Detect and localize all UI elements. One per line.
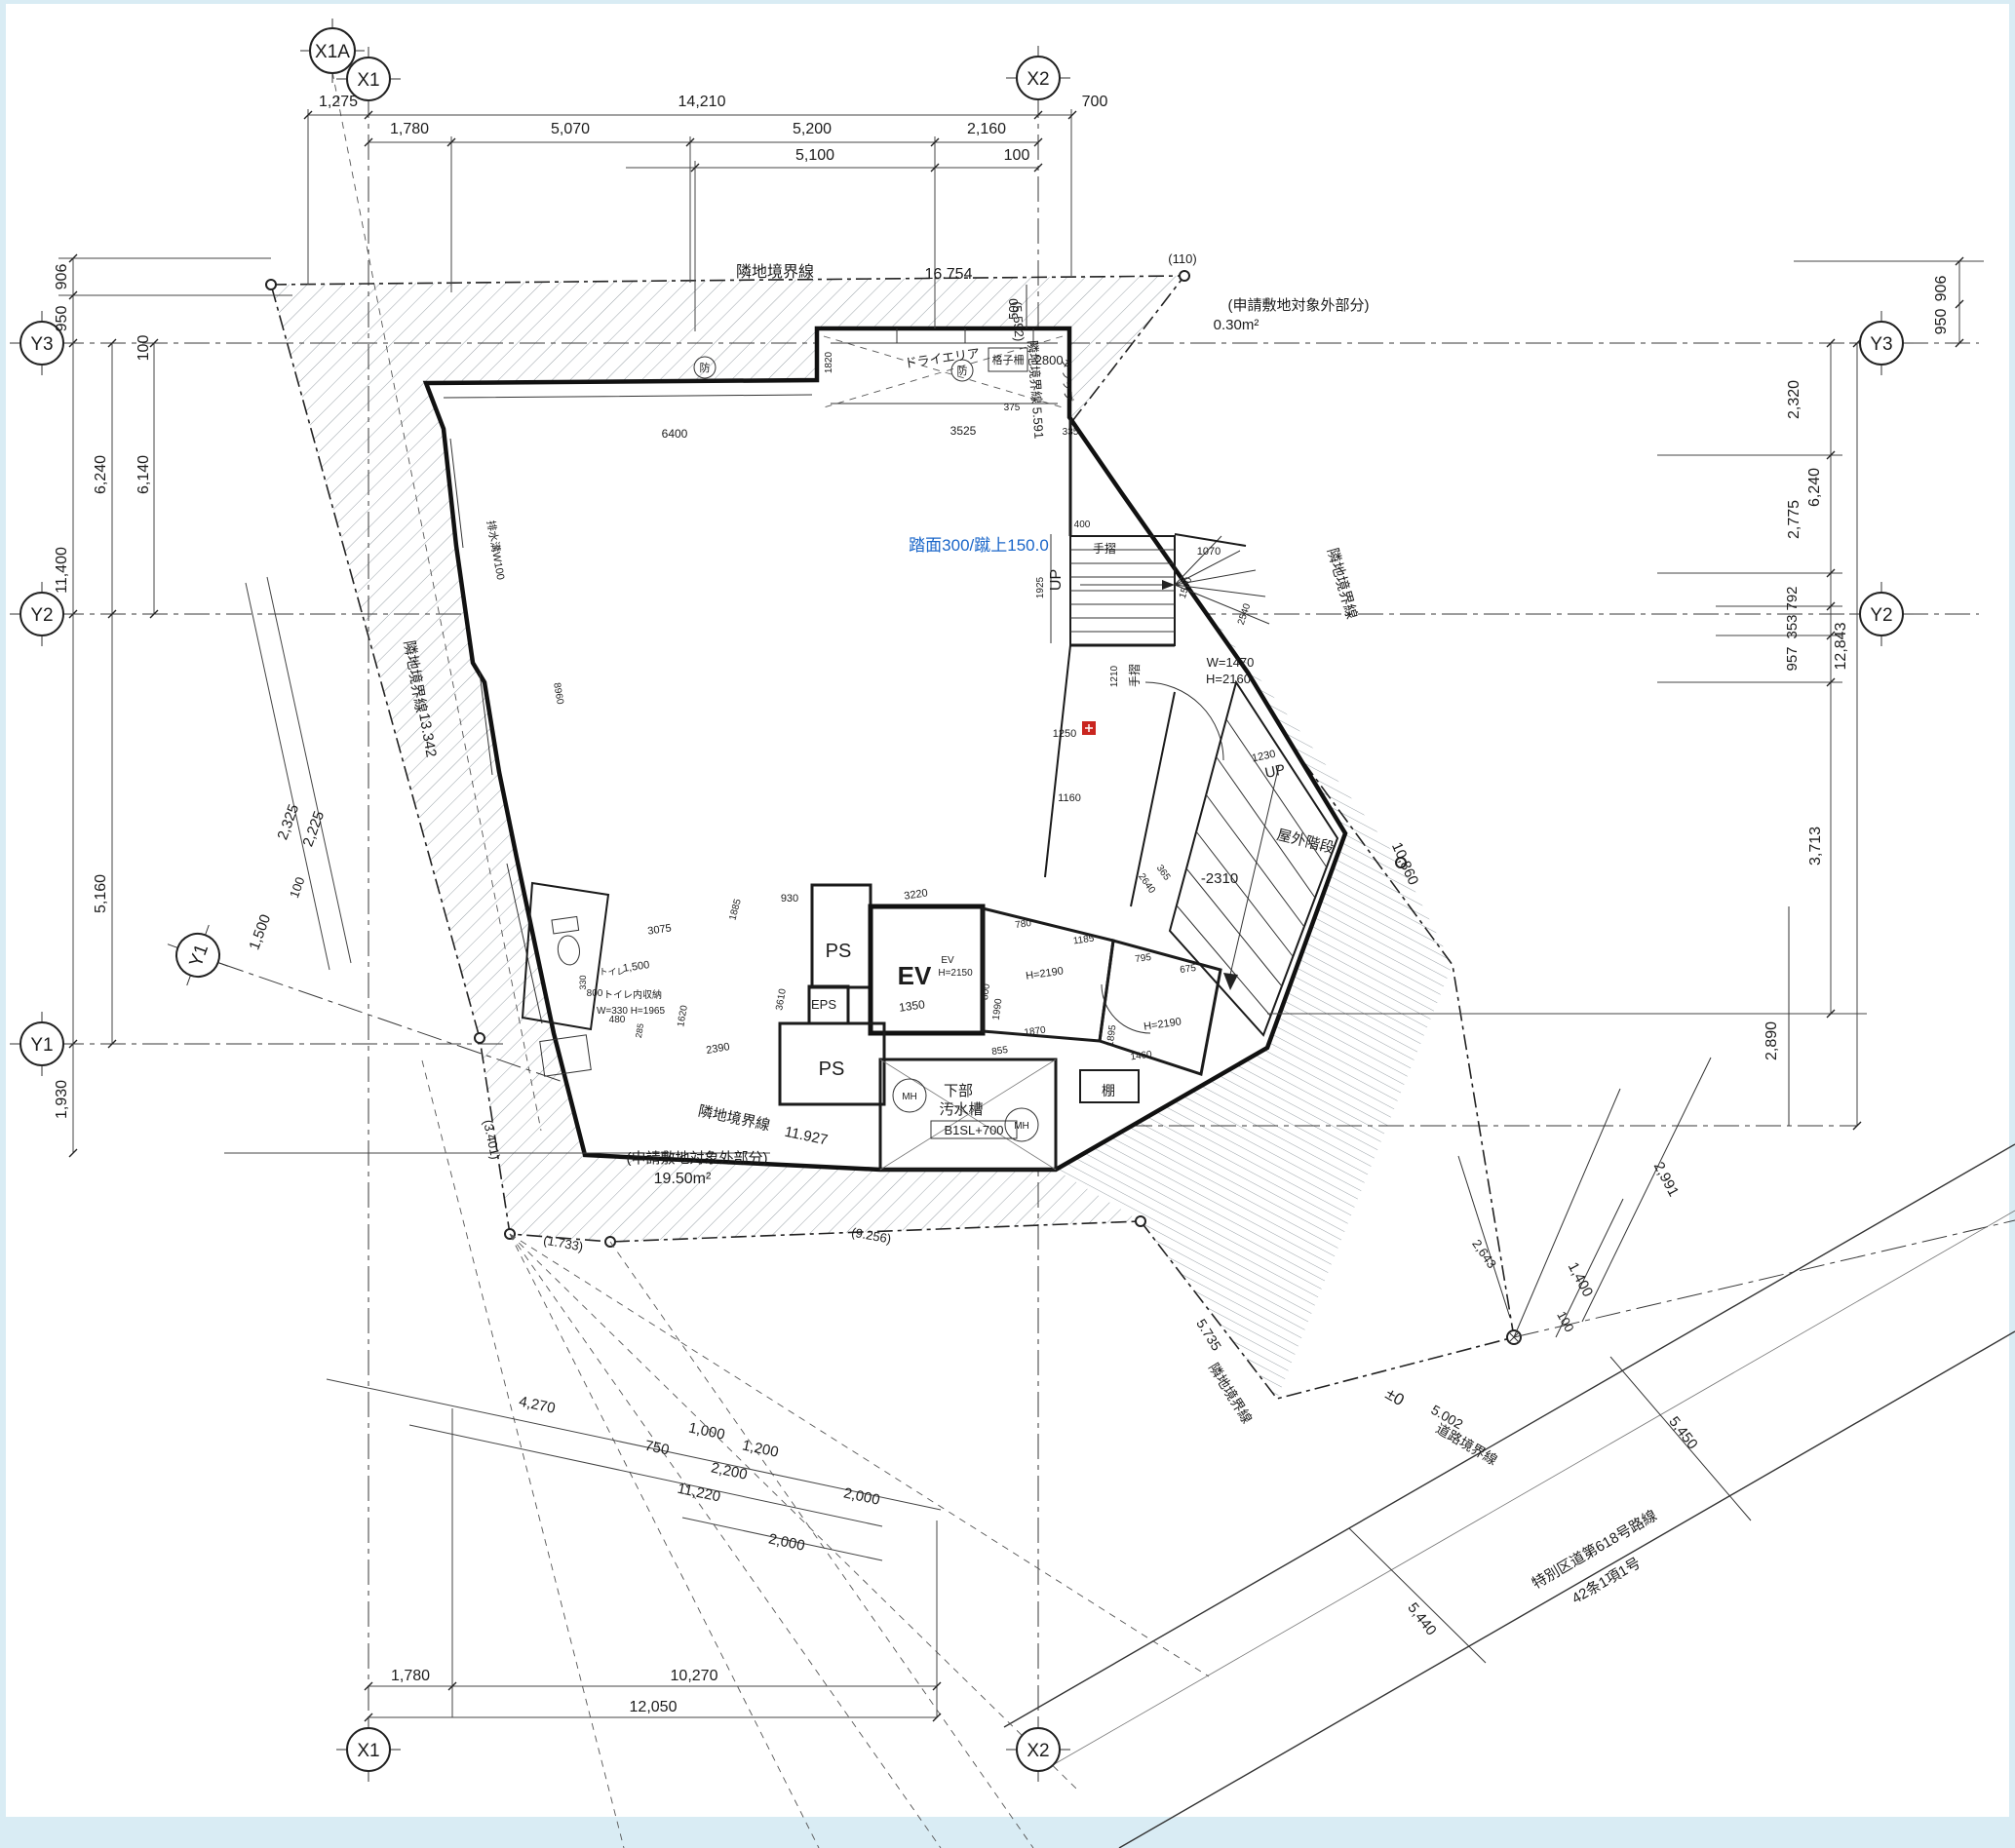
dim-label: 5,200	[793, 121, 832, 137]
boundary-length: (110)	[1168, 251, 1196, 266]
dim-label: 1925	[1035, 576, 1046, 598]
svg-text:Y2: Y2	[30, 605, 53, 626]
room-label-tank: 汚水槽	[939, 1101, 983, 1118]
dim-label: 1210	[1109, 665, 1120, 687]
dim-label: 1160	[1058, 792, 1081, 804]
stair-spec-note: 踏面300/蹴上150.0	[909, 536, 1049, 555]
dim-label: 11,400	[54, 547, 70, 594]
room-label-ps: PS	[819, 1059, 845, 1080]
dim-label: 12,843	[1833, 622, 1849, 670]
dim-label: 5,100	[795, 147, 834, 164]
door-spec: H=2160	[1206, 672, 1251, 686]
room-label: 格子柵	[992, 353, 1025, 366]
dim-label: 792	[1784, 586, 1801, 610]
dim-label: 400	[1074, 520, 1091, 530]
dim-label: 2,775	[1786, 500, 1802, 539]
dim-label: 3525	[950, 424, 977, 438]
dim-label: 950	[1933, 309, 1950, 335]
dim-label: 480	[609, 1015, 626, 1025]
svg-text:X2: X2	[1027, 1741, 1049, 1761]
fire-label: 防	[957, 364, 968, 377]
dim-label: 2,160	[967, 121, 1006, 137]
dim-label: 1,275	[319, 94, 358, 110]
dim-label: 906	[54, 264, 70, 290]
svg-text:Y2: Y2	[1870, 605, 1892, 626]
fire-label: 防	[700, 361, 711, 374]
dim-label: 10,270	[671, 1668, 718, 1684]
boundary-corner-marker	[266, 280, 276, 289]
dim-label: 14,210	[678, 94, 726, 110]
dim-label: 950	[54, 306, 70, 332]
dim-label: 335	[1063, 427, 1079, 438]
dim-label: 2,890	[1763, 1021, 1780, 1060]
svg-text:Y3: Y3	[30, 334, 53, 355]
up-label: UP	[1048, 569, 1065, 591]
dim-label: 6,140	[136, 455, 152, 494]
plan-drawing: X1A X1 X2 X1 X2 Y3 Y2 Y1 Y3 Y2 Y1 1,275 …	[0, 0, 2015, 1848]
handrail-label: 手摺	[1127, 664, 1142, 687]
area-note: (申請敷地対象外部分)	[627, 1149, 768, 1167]
svg-text:Y1: Y1	[30, 1035, 53, 1056]
room-label-ps: PS	[826, 941, 852, 962]
boundary-label: 隣地境界線	[736, 262, 814, 281]
room-note: W=330 H=1965	[597, 1006, 665, 1017]
dim-label: 906	[1933, 276, 1950, 302]
manhole-label: MH	[1014, 1121, 1029, 1132]
dim-label: 100	[136, 335, 152, 362]
svg-text:Y3: Y3	[1870, 334, 1892, 355]
floor-plan-sheet: X1A X1 X2 X1 X2 Y3 Y2 Y1 Y3 Y2 Y1 1,275 …	[0, 0, 2015, 1848]
dim-label: 12,050	[630, 1699, 678, 1715]
room-note: H=2150	[938, 968, 973, 979]
area-note: (申請敷地対象外部分)	[1228, 296, 1370, 314]
level-label: -2800	[1030, 353, 1063, 367]
room-label: トイレ	[599, 967, 625, 977]
dim-label: 5,070	[551, 121, 590, 137]
room-label-tank: 下部	[944, 1083, 973, 1099]
dim-label: 375	[1004, 403, 1021, 413]
dim-label: 1070	[1197, 546, 1221, 558]
dim-label: 800	[587, 988, 603, 999]
room-note: トイレ内収納	[603, 988, 662, 1001]
dim-label: 100	[1004, 147, 1030, 164]
svg-text:X1: X1	[357, 1741, 379, 1761]
dim-label: 957	[1784, 646, 1801, 671]
level-label: B1SL+700	[944, 1123, 1003, 1137]
dim-label: 2,320	[1786, 380, 1802, 419]
dim-label: 500	[1006, 298, 1021, 320]
dim-label: 700	[1082, 94, 1108, 110]
dim-label: 1,780	[391, 1668, 430, 1684]
dim-label: 1820	[824, 351, 834, 373]
svg-text:X1: X1	[357, 70, 379, 91]
area-note: 19.50m²	[654, 1171, 712, 1187]
dim-label: 930	[781, 893, 798, 905]
door-spec: W=1470	[1207, 655, 1255, 670]
level-stamp	[1082, 721, 1096, 735]
dim-label: 1250	[1053, 728, 1076, 740]
dim-label: 6,240	[1806, 468, 1823, 507]
manhole-label: MH	[902, 1092, 917, 1102]
room-note: EV	[941, 955, 954, 966]
room-label-eps: EPS	[811, 997, 836, 1012]
dim-label: 1,780	[390, 121, 429, 137]
dim-label: 3,713	[1807, 827, 1824, 866]
area-note: 0.30m²	[1214, 317, 1259, 333]
dim-label: 6400	[662, 427, 688, 441]
svg-text:X1A: X1A	[315, 42, 350, 62]
handrail-label: 手摺	[1093, 541, 1116, 556]
dim-label: 6,240	[93, 455, 109, 494]
room-label-shelf: 棚	[1102, 1083, 1115, 1098]
dim-label: 353	[1784, 614, 1801, 638]
dim-label: 1,930	[54, 1080, 70, 1119]
svg-text:X2: X2	[1027, 69, 1049, 90]
level-label: -2310	[1201, 870, 1238, 887]
dim-label: 330	[578, 975, 588, 989]
room-label-ev: EV	[898, 961, 932, 990]
boundary-length: 16.754	[925, 266, 973, 283]
dim-label: 5,160	[93, 874, 109, 913]
